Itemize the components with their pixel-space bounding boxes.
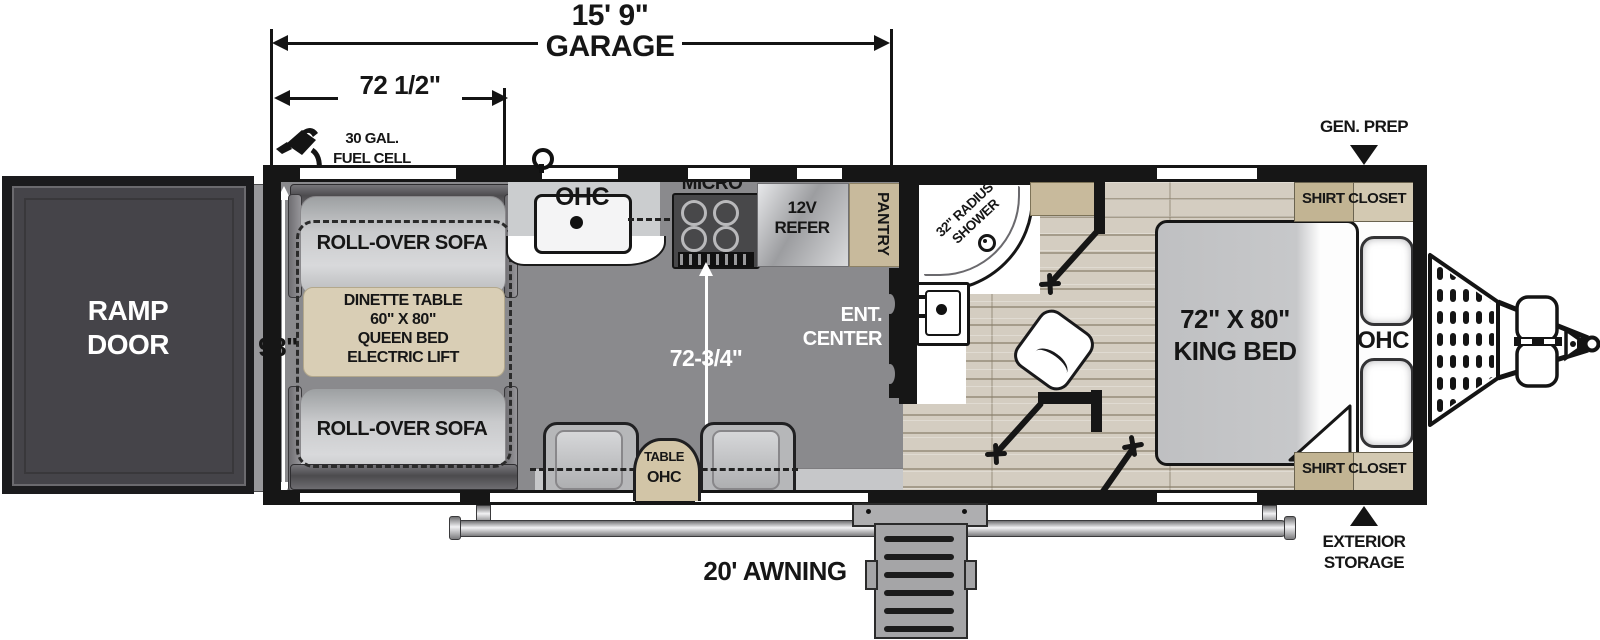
width-dim-tick: [503, 88, 506, 172]
step-tread: [884, 608, 954, 614]
awning-label: 20' AWNING: [690, 558, 860, 585]
awning-end-cap: [1284, 516, 1296, 540]
propane-tank: [1517, 343, 1557, 386]
window-top: [688, 168, 750, 179]
dinette-label-line3: QUEEN BED: [303, 331, 503, 348]
stove-vent: [678, 252, 754, 267]
step-tread: [884, 626, 954, 632]
awning-end-cap: [449, 516, 461, 540]
dinette-label-line2: 60" X 80": [303, 312, 503, 329]
faucet-icon: [570, 216, 583, 229]
entertainment-center-notch: [885, 294, 895, 314]
dinette-label-line1: DINETTE TABLE: [303, 293, 503, 310]
window-bottom: [1157, 493, 1257, 502]
bath-wall-bottom-v: [1091, 390, 1102, 432]
stove-burner-icon: [681, 200, 707, 226]
pantry-label: PANTRY: [862, 186, 890, 262]
window-bottom: [490, 493, 635, 502]
step-flange: [865, 560, 878, 590]
ent-center-label-line1: ENT.: [794, 305, 882, 326]
shirt-closet-bottom-label: SHIRT CLOSET: [1294, 461, 1414, 477]
entry-door-opening: [695, 493, 868, 502]
living-width-dim: 72-3/4": [648, 346, 764, 370]
bath-cabinet: [1030, 182, 1098, 216]
window-top: [542, 168, 618, 179]
width-dim-arrow-left-icon: [274, 90, 290, 106]
platform-screw: [866, 509, 871, 514]
garage-table-label: TABLE: [633, 450, 695, 464]
garage-dim-arrow-right-icon: [874, 35, 890, 51]
platform-screw: [962, 509, 967, 514]
theater-seat-left-cushion: [555, 430, 623, 490]
wall-left: [263, 165, 281, 505]
garage-dim-tick-right: [890, 29, 893, 172]
window-top: [1157, 168, 1257, 179]
garage-width-dim: 72 1/2": [340, 72, 460, 99]
step-tread: [884, 554, 954, 560]
window-top: [797, 168, 842, 179]
bath-faucet-icon: [936, 304, 947, 315]
refrigerator-label-line1: 12V: [757, 199, 847, 217]
step-tread: [884, 536, 954, 542]
fuel-cell-label-line1: 30 GAL.: [330, 131, 414, 147]
king-bed-label-line1: 72" X 80": [1150, 306, 1320, 333]
propane-tank: [1517, 297, 1557, 341]
garage-dim-arrow-left-icon: [272, 35, 288, 51]
wall-garage-divider: [899, 182, 917, 404]
gen-prep-arrow-icon: [1350, 145, 1378, 165]
bed-pillow: [1360, 236, 1414, 326]
exterior-storage-label-line1: EXTERIOR: [1306, 533, 1422, 551]
kitchen-ohc-label: OHC: [532, 184, 632, 210]
garage-dim-line-right: [682, 42, 880, 45]
entertainment-center-notch: [885, 364, 895, 384]
step-flange: [964, 560, 977, 590]
shower-drain-icon: [978, 234, 996, 252]
window-top: [300, 168, 456, 179]
stove-burner-icon: [713, 200, 739, 226]
step-tread: [884, 572, 954, 578]
garage-table-ohc-label: OHC: [633, 470, 695, 487]
living-width-arrow-up-icon: [699, 262, 713, 276]
bed-pillow: [1360, 358, 1414, 448]
bath-wall-stub-top: [1094, 182, 1105, 234]
ent-center-label-line2: CENTER: [762, 329, 882, 350]
exterior-storage-arrow-icon: [1350, 506, 1378, 526]
step-tread: [884, 590, 954, 596]
garage-dim-label: GARAGE: [540, 31, 680, 63]
gen-prep-label: GEN. PREP: [1306, 118, 1422, 136]
hitch-assembly: [1420, 240, 1600, 440]
dinette-label-line4: ELECTRIC LIFT: [303, 350, 503, 367]
roof-ring-stem: [539, 164, 544, 173]
ramp-door-label-line2: DOOR: [0, 330, 256, 359]
window-bottom: [300, 493, 460, 502]
stove-burner-icon: [681, 226, 707, 252]
bath-faucet-handle: [917, 314, 925, 318]
bath-faucet-handle: [917, 295, 925, 299]
refrigerator-label-line2: REFER: [757, 219, 847, 237]
shirt-closet-top-label: SHIRT CLOSET: [1294, 191, 1414, 207]
exterior-storage-label-line2: STORAGE: [1306, 554, 1422, 572]
king-bed-label-line2: KING BED: [1150, 338, 1320, 365]
theater-seat-right-cushion: [712, 430, 780, 490]
garage-length-dim: 15' 9": [540, 0, 680, 32]
stove-burner-icon: [713, 226, 739, 252]
shower-drain-dot: [983, 239, 987, 243]
garage-dim-line-left: [276, 42, 538, 45]
ramp-door-label-line1: RAMP: [0, 296, 256, 325]
bedroom-ohc-label: OHC: [1350, 328, 1416, 353]
floorplan-canvas: 15' 9" GARAGE 72 1/2" 30 GAL. FUEL CELL …: [0, 0, 1600, 640]
